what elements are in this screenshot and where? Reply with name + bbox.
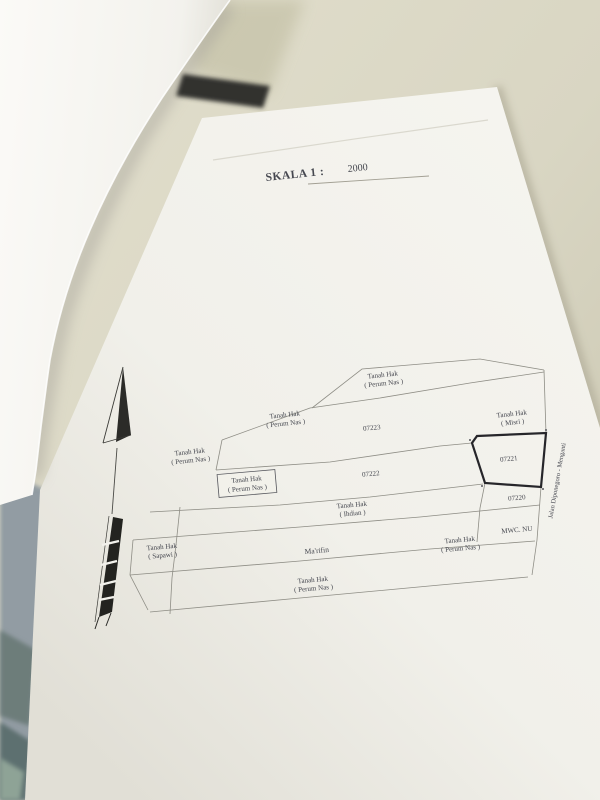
parcel-number-07220: 07220 <box>508 493 527 503</box>
scale-value: 2000 <box>347 162 368 175</box>
map-label-boxed-perum: Tanah Hak ( Perum Nas ) <box>217 470 277 498</box>
photo-of-survey-document: SKALA 1 : 2000 <box>0 0 600 800</box>
photo-canvas: SKALA 1 : 2000 <box>0 0 600 800</box>
map-label-ihdian: Tanah Hak ( Ihdian ) <box>336 500 368 519</box>
map-label-sapawi: Tanah Hak ( Sapawi ) <box>146 542 178 561</box>
map-label-misri: Tanah Hak ( Misri ) <box>496 408 528 428</box>
